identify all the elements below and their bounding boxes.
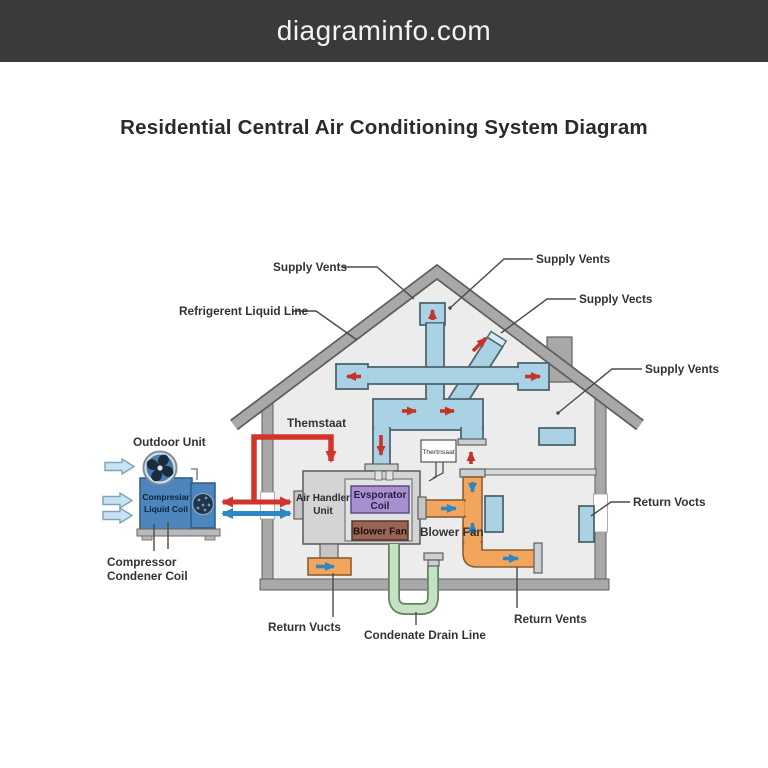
- label-compressor-line2: Condener Coil: [107, 569, 188, 583]
- compressor-box-label-line2: Liquid Coil: [144, 504, 188, 514]
- duct-seam-patch: [374, 427, 389, 431]
- label-compressor-line1: Compressor: [107, 555, 177, 569]
- return-vent-grille-wall: [579, 506, 594, 542]
- air-handler-label-line1: Air Handler: [296, 493, 350, 504]
- cabinet-pipe: [386, 471, 393, 480]
- orange-seam-patch: [465, 540, 481, 544]
- leader-dot: [556, 411, 559, 414]
- label-supply-vents-top-left: Supply Vents: [273, 260, 348, 274]
- floor-register-flange: [458, 439, 486, 445]
- air-handler-label-line2: Unit: [313, 506, 333, 517]
- label-blower-fan-ext: Blower Fan: [420, 525, 484, 539]
- label-refrigerant-line: Refrigerent Liquid Line: [179, 304, 309, 318]
- label-supply-vents-far-right: Supply Vents: [645, 362, 720, 376]
- duct-seam-patch: [427, 398, 443, 402]
- unit-foot: [205, 536, 215, 540]
- evaporator-label-line1: Evsporator: [354, 490, 407, 501]
- label-return-vucts: Return Vucts: [268, 620, 341, 634]
- drain-trap-neck: [428, 560, 439, 566]
- cabinet-pipe: [375, 471, 382, 480]
- air-handler-bottom-stub: [320, 544, 338, 558]
- duct-seam-patch: [427, 368, 443, 383]
- return-elbow-end-flange: [534, 543, 542, 573]
- airflow-block-arrows: [103, 459, 134, 523]
- duct-seam-patch: [365, 368, 369, 383]
- unit-foot: [142, 536, 152, 540]
- branch-band-duct: [373, 399, 483, 430]
- air-handler-duct-flange: [365, 464, 398, 471]
- label-outdoor-unit: Outdoor Unit: [133, 435, 206, 449]
- duct-seam-patch: [517, 368, 521, 383]
- main-vertical-duct: [426, 323, 444, 404]
- evaporator-label-line2: Coil: [371, 501, 390, 512]
- return-vent-grille-center: [485, 496, 503, 532]
- label-supply-vects-right: Supply Vects: [579, 292, 653, 306]
- label-supply-vents-top-right: Supply Vents: [536, 252, 611, 266]
- right-wall: [595, 396, 606, 579]
- label-condensate-drain: Condenate Drain Line: [364, 628, 486, 642]
- supply-vent-grille-upstairs: [539, 428, 575, 445]
- label-return-vocts: Return Vocts: [633, 495, 706, 509]
- duct-seam-patch: [427, 324, 443, 327]
- attic-horizontal-duct: [366, 367, 520, 384]
- label-thermostat: Themstaat: [287, 416, 346, 430]
- thermostat-box-label: Thertnsaat: [422, 449, 455, 456]
- condenser-fan-icon: [144, 452, 177, 485]
- compressor-box-label-line1: Compresiar: [142, 492, 190, 502]
- orange-seam-patch: [465, 502, 481, 516]
- outdoor-unit: Compresiar Liquid Coil: [103, 452, 220, 541]
- duct-seam-patch: [462, 427, 482, 431]
- drain-trap-cap: [424, 553, 443, 560]
- return-duct-floor-cap: [460, 469, 485, 477]
- label-return-vents: Return Vents: [514, 612, 587, 626]
- left-wall: [262, 396, 273, 579]
- unit-base: [137, 529, 220, 536]
- leader-dot: [448, 306, 451, 309]
- hvac-diagram: Air Handler Unit Evsporator Coil Blower …: [0, 0, 768, 768]
- air-handler-return-stub: [418, 497, 426, 519]
- blower-fan-box-label: Blower Fan: [353, 527, 407, 538]
